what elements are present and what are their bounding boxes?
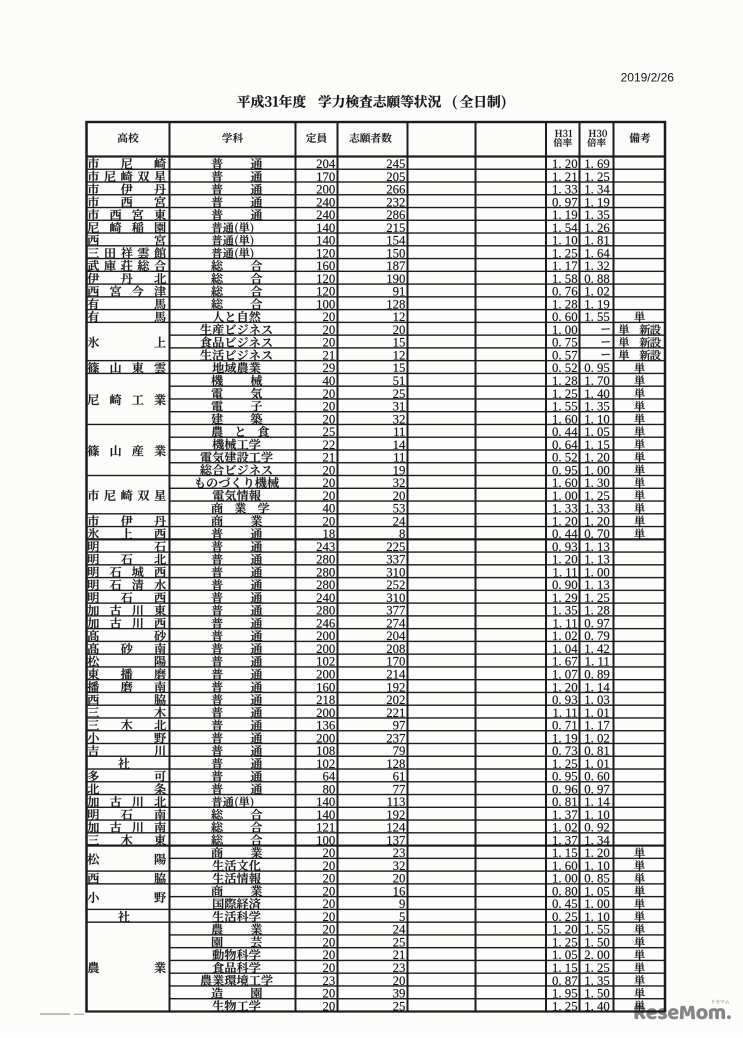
svg-text:1. 55: 1. 55 — [584, 310, 610, 324]
svg-text:1. 25: 1. 25 — [552, 999, 578, 1013]
svg-text:20: 20 — [323, 999, 336, 1013]
svg-text:1. 40: 1. 40 — [584, 999, 610, 1013]
svg-text:25: 25 — [393, 999, 406, 1013]
svg-text:2019/2/26: 2019/2/26 — [621, 70, 675, 84]
